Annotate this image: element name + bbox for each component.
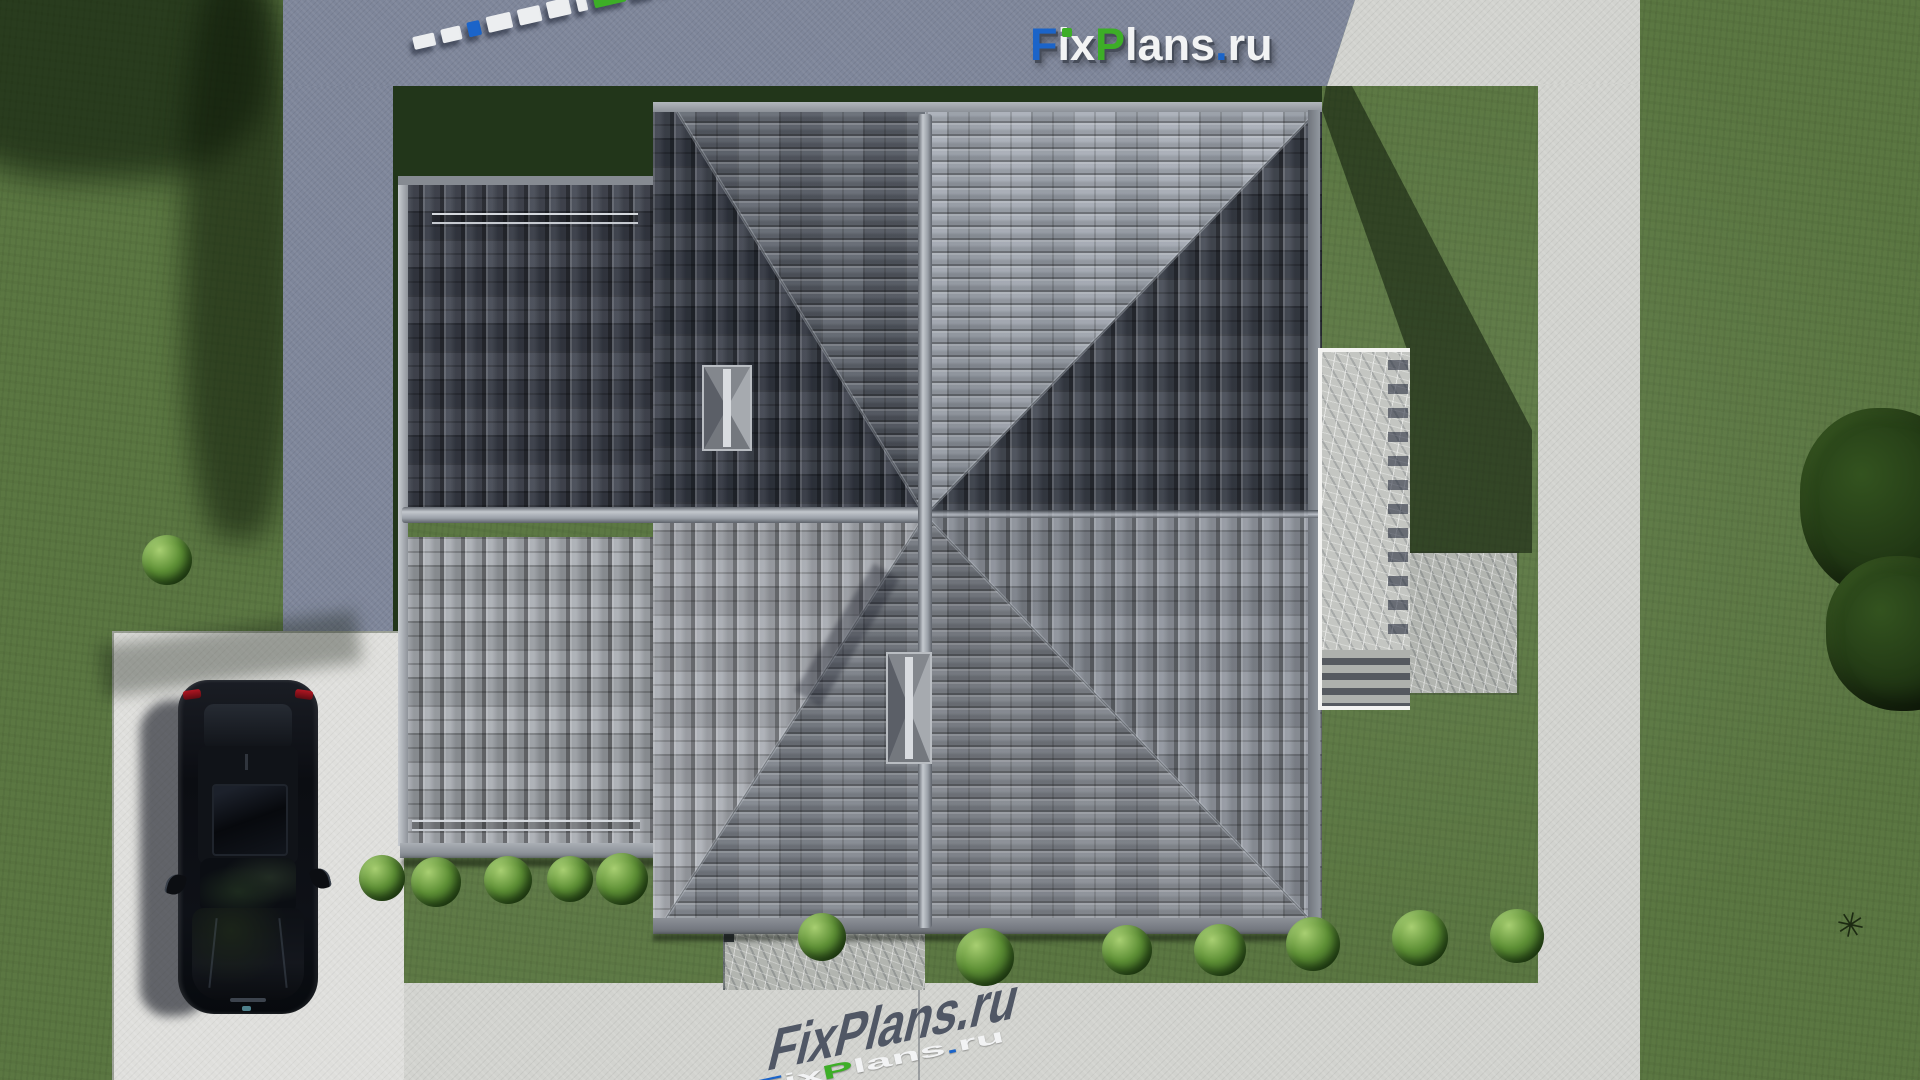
site-plan-render: ✳ FixPlans.ru FixPlans.ru xyxy=(0,0,1920,1080)
garage-roof-south-slope xyxy=(402,537,653,845)
main-eave-top xyxy=(653,102,1322,112)
logo-segment: P xyxy=(1095,19,1125,70)
logo-segment: . xyxy=(1215,19,1228,70)
sunroof xyxy=(212,784,288,856)
bush xyxy=(547,856,593,902)
logo-segment: F xyxy=(1030,19,1058,70)
taillight-left xyxy=(182,689,201,700)
rear-window xyxy=(204,704,292,750)
snow-rail-lower xyxy=(412,820,640,831)
bush xyxy=(484,856,532,904)
left-path-shadowed xyxy=(283,0,393,637)
chimney-cap xyxy=(905,657,913,759)
roof-skylight-north xyxy=(702,365,752,451)
letter-block xyxy=(575,0,589,12)
garage-roof-north-slope xyxy=(402,183,653,515)
front-sensor xyxy=(242,1006,251,1011)
ridge-vertical xyxy=(918,114,932,928)
snow-rail-upper xyxy=(432,213,638,224)
bush xyxy=(1194,924,1246,976)
chimney-cap xyxy=(723,369,731,446)
bush xyxy=(359,855,405,901)
ridge-horizontal-east xyxy=(925,510,1322,518)
logo-segment: ru xyxy=(1228,19,1273,70)
antenna xyxy=(245,754,248,770)
stone-patio xyxy=(1410,553,1517,693)
small-plant: ✳ xyxy=(1832,903,1868,948)
tree-shadow-strip xyxy=(183,0,295,540)
terrace-railing-shadow xyxy=(1388,360,1408,642)
bush xyxy=(596,853,648,905)
front-glint xyxy=(230,998,266,1002)
terrace-steps xyxy=(1322,650,1410,706)
bush xyxy=(798,913,846,961)
car xyxy=(178,680,318,1014)
terrace xyxy=(1318,348,1410,710)
bush xyxy=(142,535,192,585)
bush xyxy=(411,857,461,907)
logo-i-dot xyxy=(1062,28,1072,37)
letter-block xyxy=(466,20,482,38)
logo-segment: lans xyxy=(1125,19,1215,70)
bush xyxy=(1490,909,1544,963)
windshield xyxy=(200,858,296,914)
right-path xyxy=(1538,84,1640,1080)
bush xyxy=(1392,910,1448,966)
shadow-grass-wing-top xyxy=(393,84,660,185)
bush xyxy=(1286,917,1340,971)
logo-segment: ix xyxy=(1058,19,1096,70)
garage-eave-top xyxy=(398,176,657,185)
brand-logo: FixPlans.ru xyxy=(1030,22,1273,67)
ridge-horizontal xyxy=(402,507,925,523)
taillight-right xyxy=(294,689,313,700)
roof-skylight-south xyxy=(886,652,932,764)
